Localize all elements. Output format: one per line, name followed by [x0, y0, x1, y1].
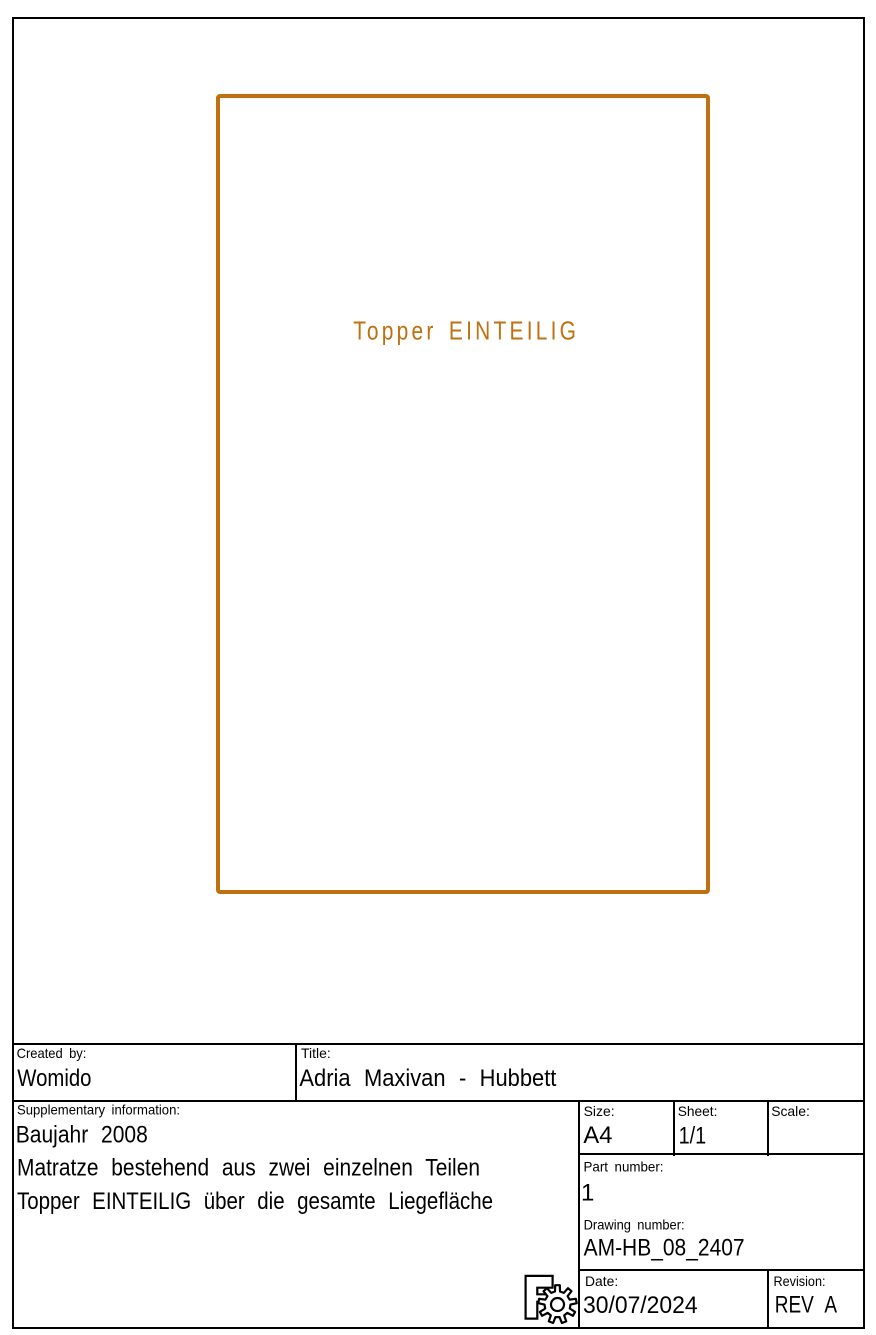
- svg-text:30/07/2024: 30/07/2024: [583, 1292, 698, 1319]
- svg-text:1: 1: [581, 1179, 594, 1206]
- svg-text:Scale:: Scale:: [771, 1103, 810, 1119]
- svg-text:REV A: REV A: [775, 1292, 837, 1319]
- svg-text:Adria Maxivan - Hubbett: Adria Maxivan - Hubbett: [299, 1065, 556, 1092]
- svg-text:Baujahr 2008: Baujahr 2008: [16, 1121, 148, 1148]
- svg-text:Sheet:: Sheet:: [678, 1103, 718, 1119]
- svg-text:Topper EINTEILIG: Topper EINTEILIG: [353, 316, 579, 346]
- svg-text:Drawing number:: Drawing number:: [584, 1217, 685, 1233]
- svg-text:1/1: 1/1: [679, 1122, 707, 1149]
- svg-text:Topper EINTEILIG über die gesa: Topper EINTEILIG über die gesamte Liegef…: [17, 1188, 493, 1215]
- svg-text:Supplementary information:: Supplementary information:: [17, 1101, 180, 1117]
- svg-text:Part number:: Part number:: [584, 1158, 664, 1174]
- svg-text:Created by:: Created by:: [17, 1045, 87, 1061]
- svg-text:A4: A4: [583, 1122, 612, 1149]
- svg-text:Matratze bestehend aus zwei ei: Matratze bestehend aus zwei einzelnen Te…: [17, 1155, 480, 1182]
- svg-text:Revision:: Revision:: [774, 1273, 826, 1289]
- svg-text:Date:: Date:: [585, 1273, 618, 1289]
- svg-text:Title:: Title:: [301, 1045, 331, 1061]
- svg-text:Womido: Womido: [17, 1065, 91, 1092]
- svg-text:AM-HB_08_2407: AM-HB_08_2407: [584, 1235, 745, 1262]
- svg-text:Size:: Size:: [584, 1103, 615, 1119]
